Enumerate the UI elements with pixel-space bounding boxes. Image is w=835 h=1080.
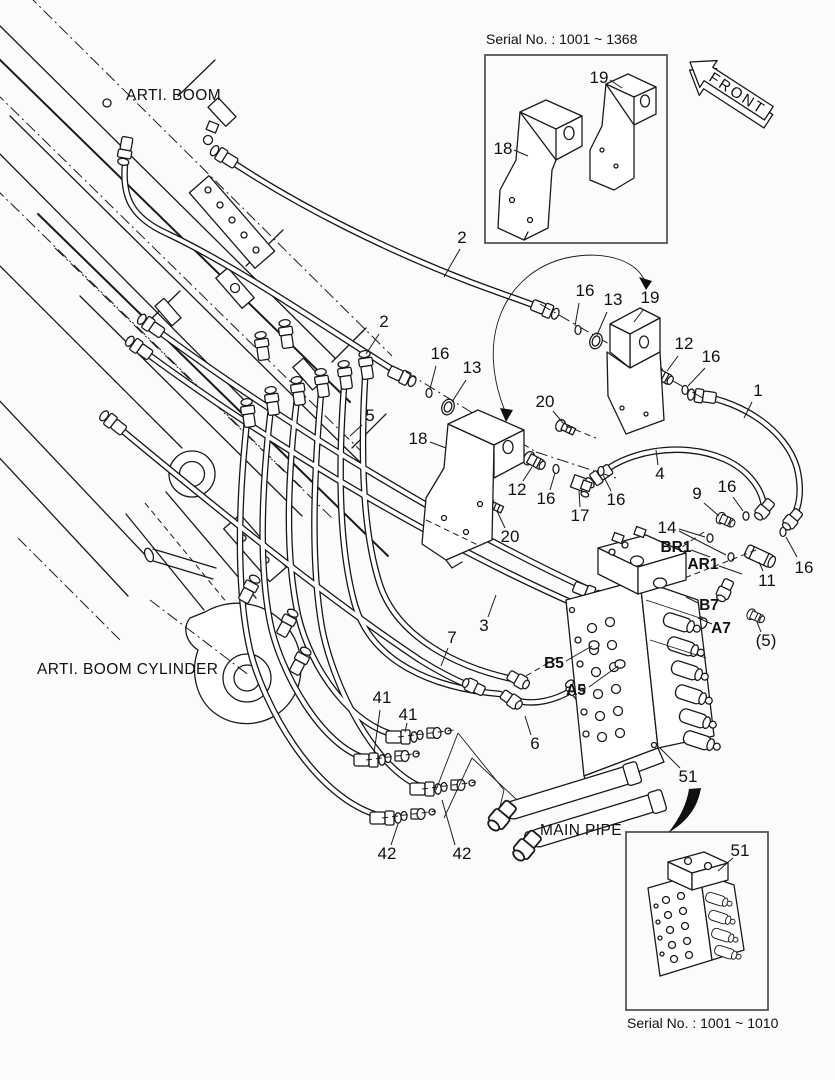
part-callout-41: 41 <box>373 688 392 708</box>
part-callout-20: 20 <box>536 392 555 412</box>
o-ring-16 <box>575 326 581 335</box>
inset-bracket-19 <box>590 74 656 190</box>
bracket-19-main <box>607 308 664 434</box>
part-callout-5: (5) <box>756 631 777 651</box>
port-b5 <box>589 641 599 649</box>
o-ring-16 <box>598 467 604 476</box>
part-callout-12: 12 <box>675 334 694 354</box>
o-ring-16 <box>553 465 559 474</box>
part-callout-14: 14 <box>658 518 677 538</box>
o-ring-16 <box>426 389 432 398</box>
part-callout-16: 16 <box>431 344 450 364</box>
inset-top-caption: Serial No. : 1001 ~ 1368 <box>486 31 637 47</box>
part-callout-7: 7 <box>447 628 456 648</box>
part-callout-17: 17 <box>571 506 590 526</box>
part-callout-20: 20 <box>501 527 520 547</box>
o-ring-16 <box>682 386 688 395</box>
part-callout-16: 16 <box>537 489 556 509</box>
inset-valve-51 <box>648 852 744 976</box>
part-callout-A7: A7 <box>711 620 731 638</box>
part-callout-16: 16 <box>718 477 737 497</box>
main-pipe-label: MAIN PIPE <box>540 822 622 840</box>
part-callout-19: 19 <box>590 68 609 88</box>
part-callout-BR1: BR1 <box>660 539 691 557</box>
inset-bracket-18 <box>498 100 582 240</box>
nut-13 <box>588 331 605 350</box>
part-callout-5: 5 <box>365 406 374 426</box>
diagram-line-art: FRONT <box>0 0 835 1080</box>
port-br1 <box>631 556 644 566</box>
o-ring-16 <box>743 512 749 520</box>
part-callout-41: 41 <box>399 705 418 725</box>
bolt-20 <box>554 418 577 437</box>
part-callout-AR1: AR1 <box>687 556 718 574</box>
hydraulic-piping-parts-diagram: FRONT <box>0 0 835 1080</box>
inset-bottom-caption: Serial No. : 1001 ~ 1010 <box>627 1015 778 1031</box>
part-callout-16: 16 <box>607 490 626 510</box>
part-callout-4: 4 <box>655 464 664 484</box>
part-callout-A5: A5 <box>566 682 586 700</box>
part-callout-16: 16 <box>702 347 721 367</box>
adapter-12 <box>521 450 548 473</box>
part-callout-1: 1 <box>753 381 762 401</box>
part-callout-16: 16 <box>795 558 814 578</box>
fitting-5 <box>745 608 766 626</box>
part-callout-18: 18 <box>494 139 513 159</box>
nut-13 <box>440 397 457 416</box>
part-callout-51: 51 <box>731 841 750 861</box>
o-ring-16 <box>780 528 786 537</box>
part-callout-9: 9 <box>692 484 701 504</box>
o-ring-14 <box>728 553 734 561</box>
part-callout-2: 2 <box>457 228 466 248</box>
arti-boom-cylinder-label: ARTI. BOOM CYLINDER <box>37 661 218 679</box>
part-callout-3: 3 <box>479 616 488 636</box>
arti-boom-label: ARTI. BOOM <box>126 87 221 105</box>
inset-bottom <box>626 788 768 1010</box>
o-ring-14 <box>707 534 713 542</box>
part-callout-B7: B7 <box>699 597 719 615</box>
fitting-9 <box>714 511 736 530</box>
part-callout-12: 12 <box>508 480 527 500</box>
part-callout-6: 6 <box>530 734 539 754</box>
swoosh-arrow <box>668 788 701 833</box>
part-callout-42: 42 <box>453 844 472 864</box>
port-ar1 <box>654 578 667 588</box>
part-callout-51: 51 <box>679 767 698 787</box>
part-callout-2: 2 <box>379 312 388 332</box>
part-callout-13: 13 <box>604 290 623 310</box>
part-callout-16: 16 <box>576 281 595 301</box>
part-callout-18: 18 <box>409 429 428 449</box>
part-callout-42: 42 <box>378 844 397 864</box>
part-callout-19: 19 <box>641 288 660 308</box>
part-callout-13: 13 <box>463 358 482 378</box>
part-callout-11: 11 <box>758 571 776 591</box>
front-direction-arrow: FRONT <box>677 49 780 135</box>
arti-boom-cylinder-drawing <box>126 492 301 724</box>
part-callout-B5: B5 <box>544 655 564 673</box>
